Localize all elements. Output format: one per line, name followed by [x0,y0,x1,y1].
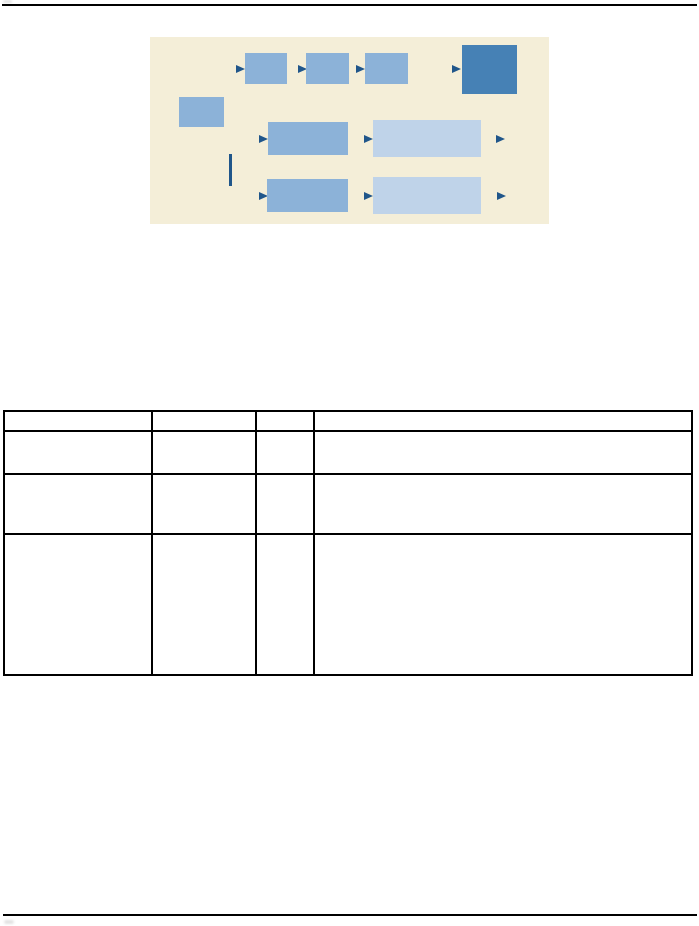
table-cell-r2c0 [4,534,152,675]
table-row [4,534,692,675]
table-row [4,474,692,534]
flow-arrow-7 [496,135,505,143]
table-cell-r0c2 [256,431,314,474]
faint-header-artifact [3,0,12,3]
table-cell-r1c2 [256,474,314,534]
faint-footer-artifact [4,920,14,924]
flow-box-wide1 [373,120,481,157]
table-cell-r0c3 [314,431,692,474]
table-cell-r2c2 [256,534,314,675]
flow-arrow-10 [497,192,506,200]
table-header-row [4,411,692,431]
footer-rule [3,914,697,916]
table-cell-r2c3 [314,534,692,675]
diagram-panel [150,37,549,224]
flow-box-result [462,45,517,94]
table-row [4,431,692,474]
table-header-c2 [256,411,314,431]
flow-vline [229,154,232,186]
table-cell-r0c0 [4,431,152,474]
flow-box-wide2 [373,177,481,214]
flow-box-step3 [365,53,408,84]
table-cell-r1c3 [314,474,692,534]
table-header-c1 [152,411,256,431]
flow-box-step1 [245,53,287,84]
document-page [0,0,699,926]
header-rule [2,4,697,6]
data-table [3,410,693,676]
flow-arrow-4 [452,65,461,73]
table-cell-r2c1 [152,534,256,675]
table-header-c3 [314,411,692,431]
table-cell-r0c1 [152,431,256,474]
flow-arrow-3 [356,65,365,73]
table-header-c0 [4,411,152,431]
flow-arrow-9 [364,192,373,200]
flow-box-mid2 [267,179,348,212]
flow-arrow-1 [236,65,245,73]
flow-arrow-5 [259,135,268,143]
flow-box-mid1 [268,122,348,155]
flow-box-step2 [306,53,349,84]
table-cell-r1c1 [152,474,256,534]
flow-arrow-6 [364,135,373,143]
flow-box-start [179,97,224,127]
table-cell-r1c0 [4,474,152,534]
